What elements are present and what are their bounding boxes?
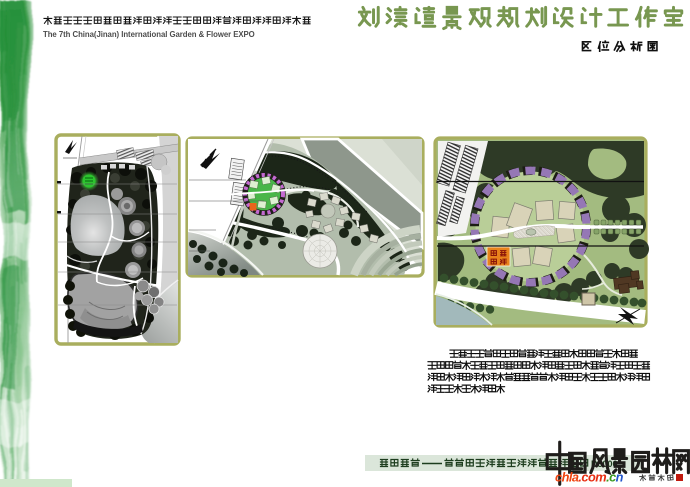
svg-text:chla.com.cn: chla.com.cn — [555, 470, 624, 485]
